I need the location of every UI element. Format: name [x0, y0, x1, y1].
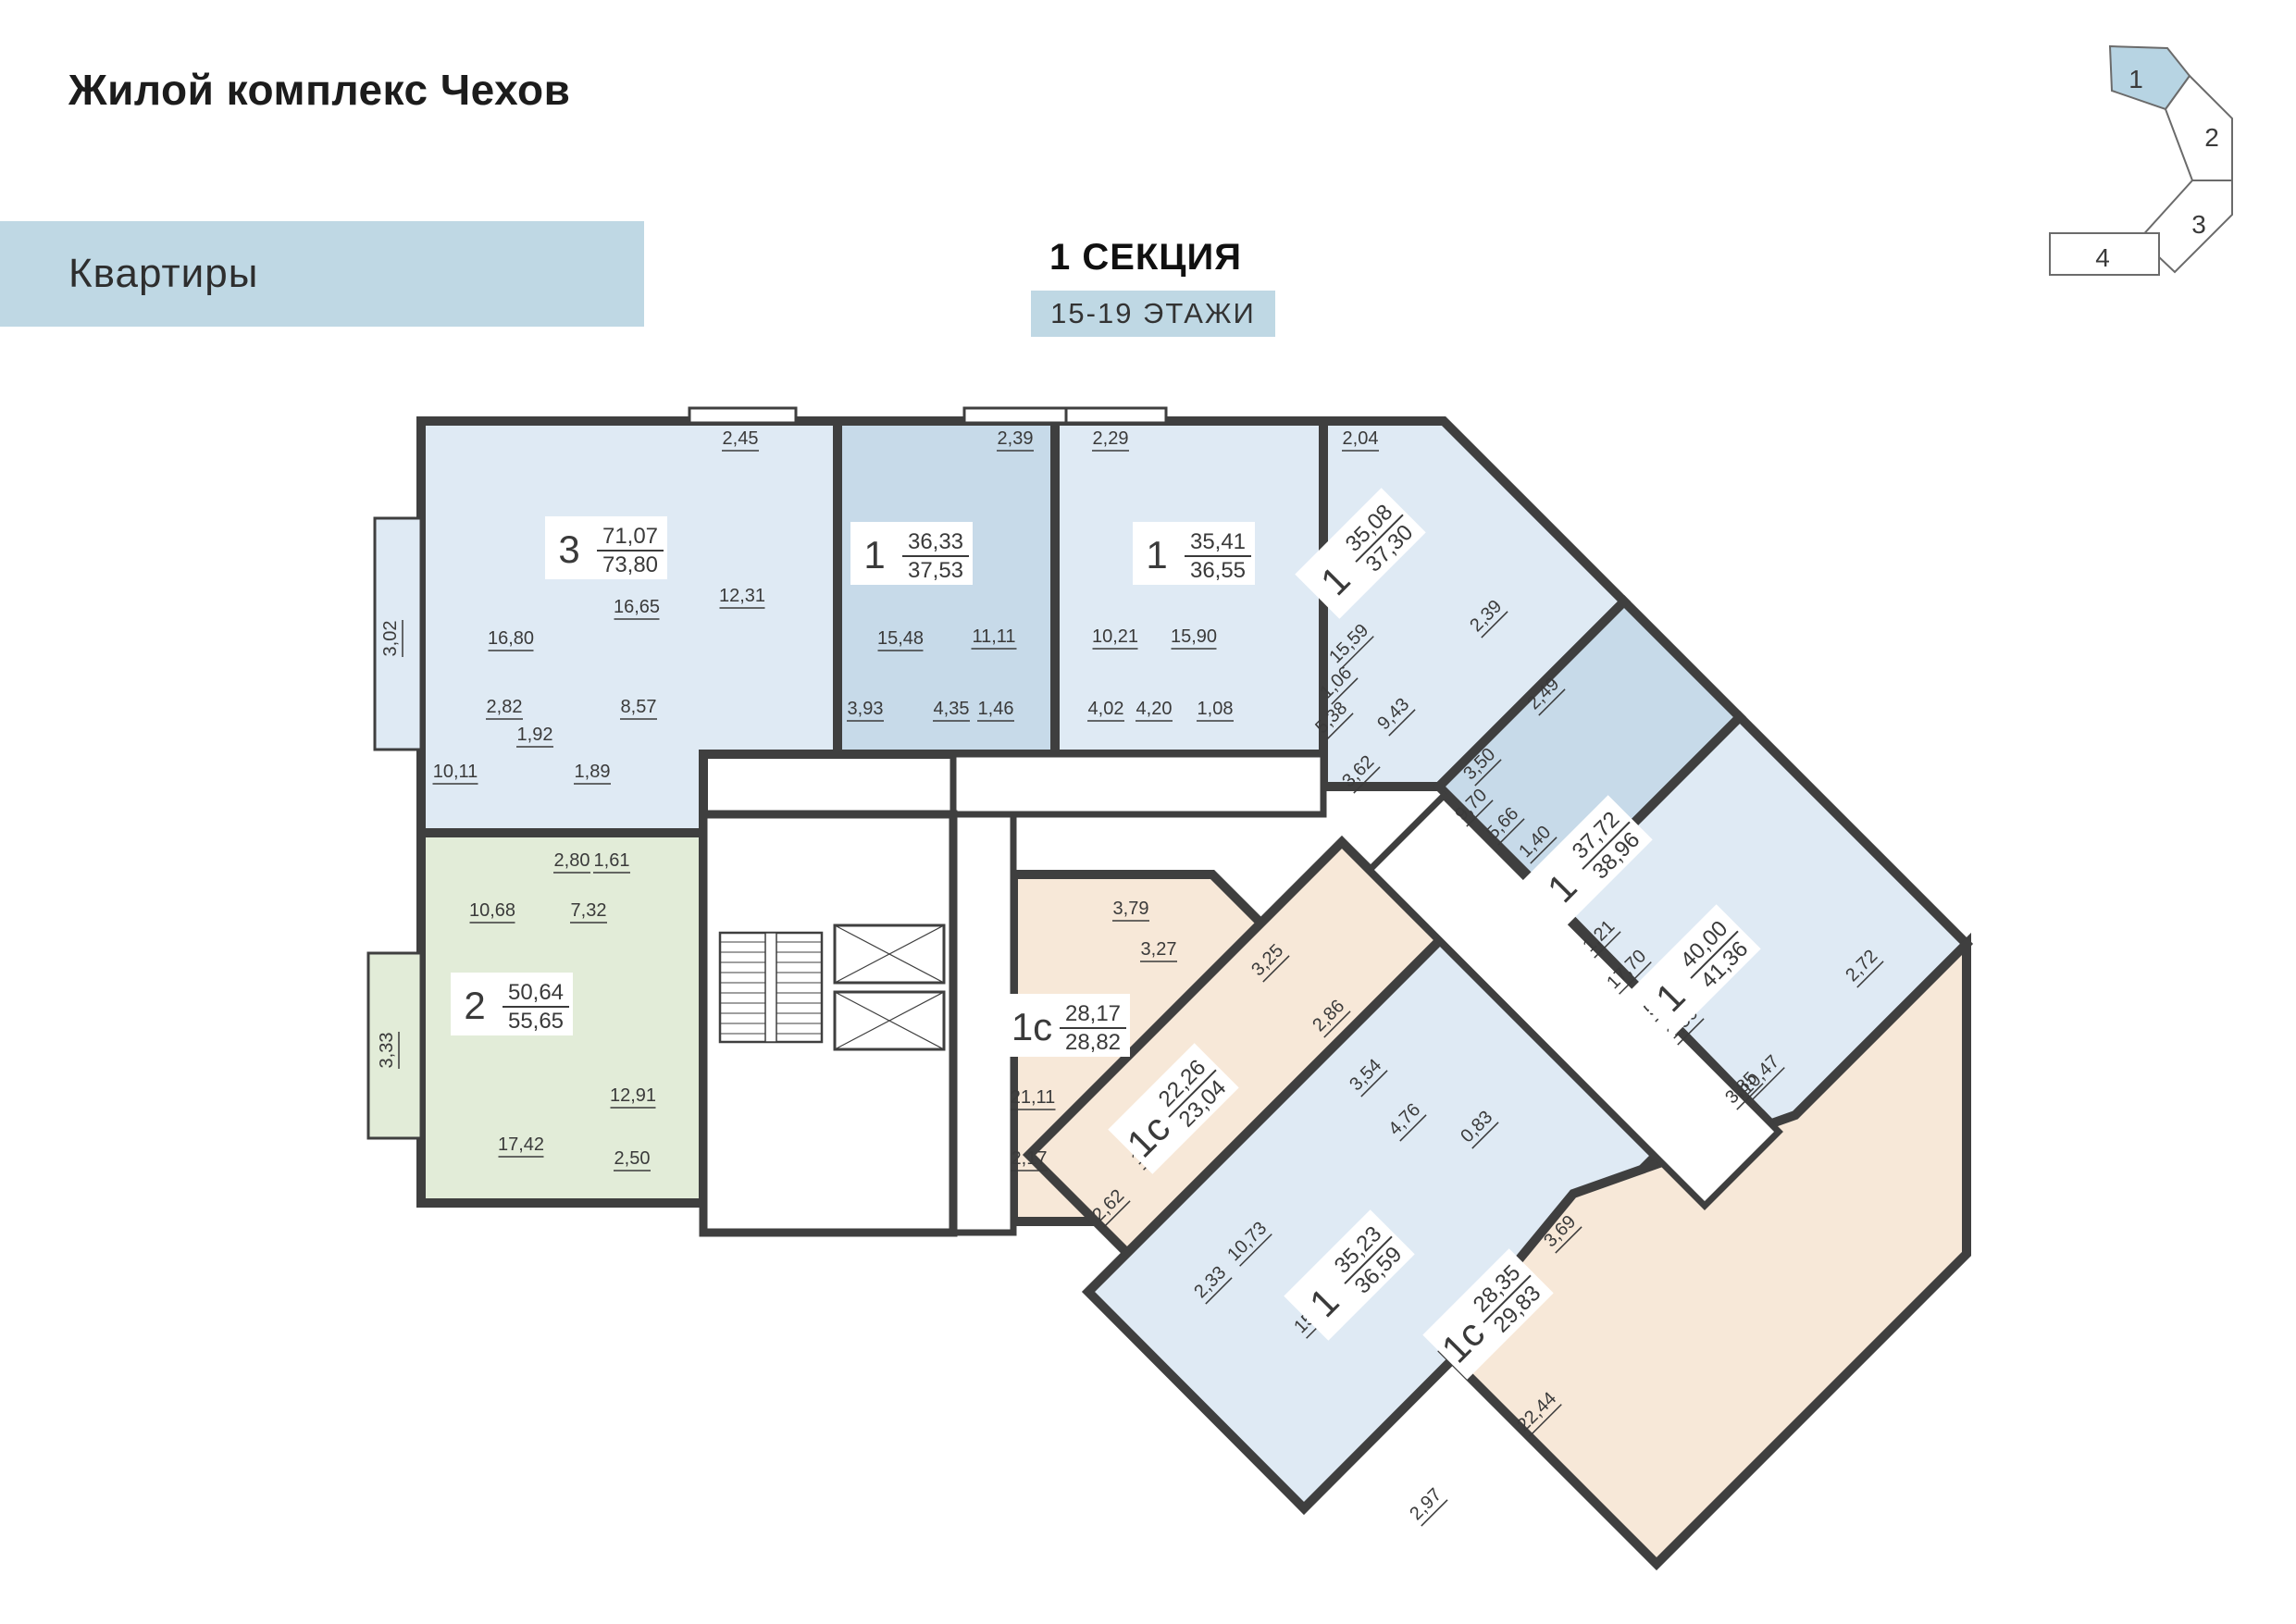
- room-area-label: 2,04: [1342, 428, 1379, 451]
- room-area-label: 2,97: [1406, 1484, 1447, 1526]
- svg-text:11,11: 11,11: [972, 626, 1015, 647]
- svg-text:21,11: 21,11: [1011, 1087, 1056, 1108]
- svg-text:1,92: 1,92: [517, 725, 553, 745]
- svg-text:2,80: 2,80: [554, 850, 590, 871]
- svg-text:10,21: 10,21: [1092, 626, 1138, 647]
- room-area-label: 12,91: [610, 1085, 656, 1108]
- svg-text:3,27: 3,27: [1141, 939, 1177, 960]
- apartment-area-living: 36,33: [908, 529, 963, 554]
- room-area-label: 17,42: [498, 1134, 544, 1157]
- apartment-region-3-71-07[interactable]: [421, 421, 838, 833]
- room-area-label: 10,68: [469, 900, 515, 923]
- svg-text:15,90: 15,90: [1171, 626, 1217, 647]
- svg-text:4,35: 4,35: [934, 699, 970, 719]
- staircase: [720, 933, 822, 1042]
- room-area-label: 16,80: [488, 628, 534, 651]
- svg-text:3,93: 3,93: [848, 699, 884, 719]
- room-area-label: 2,82: [486, 697, 523, 719]
- svg-text:8,57: 8,57: [621, 697, 657, 717]
- room-area-label: 10,11: [433, 762, 478, 784]
- apartment-badge-1c-28-17: 1с28,1728,82: [1008, 994, 1130, 1057]
- room-area-label: 2,45: [722, 428, 759, 451]
- room-area-label: 3,93: [847, 699, 884, 721]
- room-area-label: 15,90: [1171, 626, 1217, 649]
- svg-text:4,02: 4,02: [1088, 699, 1124, 719]
- svg-text:10,68: 10,68: [469, 900, 515, 921]
- room-area-label: 4,02: [1087, 699, 1124, 721]
- apartment-type: 2: [464, 984, 485, 1027]
- room-area-label: 8,57: [620, 697, 657, 719]
- svg-text:2,45: 2,45: [723, 428, 759, 449]
- key-plan-section-number: 3: [2191, 210, 2206, 239]
- room-area-label: 4,20: [1136, 699, 1173, 721]
- svg-text:1,46: 1,46: [978, 699, 1014, 719]
- apartment-area-living: 35,41: [1190, 529, 1246, 554]
- svg-text:3,33: 3,33: [377, 1033, 397, 1069]
- svg-text:2,29: 2,29: [1093, 428, 1129, 449]
- room-area-label: 3,33: [377, 1032, 399, 1069]
- room-area-label: 11,11: [972, 626, 1017, 649]
- svg-text:2,82: 2,82: [487, 697, 523, 717]
- balcony-top-2: [964, 408, 1066, 423]
- balcony-top-1: [689, 408, 796, 423]
- svg-text:1,08: 1,08: [1198, 699, 1234, 719]
- svg-text:4,20: 4,20: [1136, 699, 1173, 719]
- lobby: [953, 814, 1013, 1233]
- balcony-top-3: [1066, 408, 1166, 423]
- svg-text:2,97: 2,97: [1406, 1484, 1446, 1524]
- room-area-label: 21,11: [1011, 1087, 1056, 1110]
- apartment-badge-2-50-64: 250,6455,65: [451, 973, 573, 1035]
- page: Жилой комплекс Чехов Квартиры 1 СЕКЦИЯ 1…: [0, 0, 2296, 1624]
- svg-text:2,39: 2,39: [998, 428, 1034, 449]
- room-area-label: 2,50: [614, 1148, 651, 1171]
- svg-text:1,61: 1,61: [594, 850, 630, 871]
- apartment-badge-3-71-07: 371,0773,80: [545, 516, 667, 579]
- apartment-area-total: 28,82: [1065, 1030, 1121, 1055]
- room-area-label: 2,80: [553, 850, 590, 873]
- room-area-label: 2,29: [1092, 428, 1129, 451]
- room-area-label: 1,61: [593, 850, 630, 873]
- apartment-type: 1с: [1011, 1005, 1052, 1048]
- svg-text:17,42: 17,42: [498, 1134, 544, 1155]
- apartment-type: 3: [558, 527, 579, 571]
- room-area-label: 4,35: [933, 699, 970, 721]
- svg-text:10,11: 10,11: [433, 762, 478, 782]
- svg-text:1,89: 1,89: [575, 762, 611, 782]
- apartment-area-total: 73,80: [602, 552, 658, 577]
- apartment-area-total: 37,53: [908, 558, 963, 583]
- room-area-label: 1,46: [977, 699, 1014, 721]
- apartment-type: 1: [1146, 533, 1167, 576]
- room-area-label: 3,27: [1140, 939, 1177, 961]
- room-area-label: 1,92: [516, 725, 553, 747]
- apartment-type: 1: [863, 533, 885, 576]
- apartment-area-living: 71,07: [602, 524, 658, 549]
- svg-text:16,65: 16,65: [614, 597, 660, 617]
- svg-text:12,91: 12,91: [610, 1085, 656, 1106]
- floor-plan-svg: 12342,4516,8016,6512,313,028,572,821,921…: [0, 0, 2296, 1624]
- room-area-label: 3,02: [380, 620, 403, 657]
- room-area-label: 16,65: [614, 597, 660, 619]
- room-area-label: 1,08: [1197, 699, 1234, 721]
- hallway: [953, 754, 1323, 814]
- room-area-label: 15,48: [877, 628, 924, 651]
- svg-text:2,17: 2,17: [1011, 1148, 1048, 1169]
- apartment-area-total: 36,55: [1190, 558, 1246, 583]
- svg-text:7,32: 7,32: [571, 900, 607, 921]
- room-area-label: 3,79: [1112, 899, 1149, 921]
- room-area-label: 12,31: [719, 586, 765, 608]
- svg-text:2,04: 2,04: [1343, 428, 1379, 449]
- svg-text:3,02: 3,02: [380, 621, 401, 657]
- apartment-area-living: 28,17: [1065, 1001, 1121, 1026]
- elevator-1: [835, 925, 944, 983]
- room-area-label: 10,21: [1092, 626, 1138, 649]
- room-area-label: 1,89: [574, 762, 611, 784]
- key-plan-section-number: 1: [2128, 65, 2143, 93]
- svg-text:12,31: 12,31: [719, 586, 765, 606]
- room-area-label: 7,32: [570, 900, 607, 923]
- elevator-2: [835, 992, 944, 1049]
- svg-text:3,79: 3,79: [1113, 899, 1149, 919]
- apartment-badge-1-35-41: 135,4136,55: [1133, 522, 1255, 585]
- key-plan-section-number: 2: [2204, 123, 2219, 152]
- room-area-label: 2,39: [997, 428, 1034, 451]
- svg-text:2,50: 2,50: [614, 1148, 651, 1169]
- key-plan-section-number: 4: [2095, 243, 2110, 272]
- room-area-label: 2,17: [1011, 1148, 1048, 1171]
- apartment-area-total: 55,65: [508, 1009, 564, 1034]
- svg-text:16,80: 16,80: [488, 628, 534, 649]
- key-plan: 1234: [2050, 46, 2232, 275]
- apartment-area-living: 50,64: [508, 980, 564, 1005]
- svg-text:15,48: 15,48: [877, 628, 924, 649]
- apartment-badge-1-36-33: 136,3337,53: [850, 522, 973, 585]
